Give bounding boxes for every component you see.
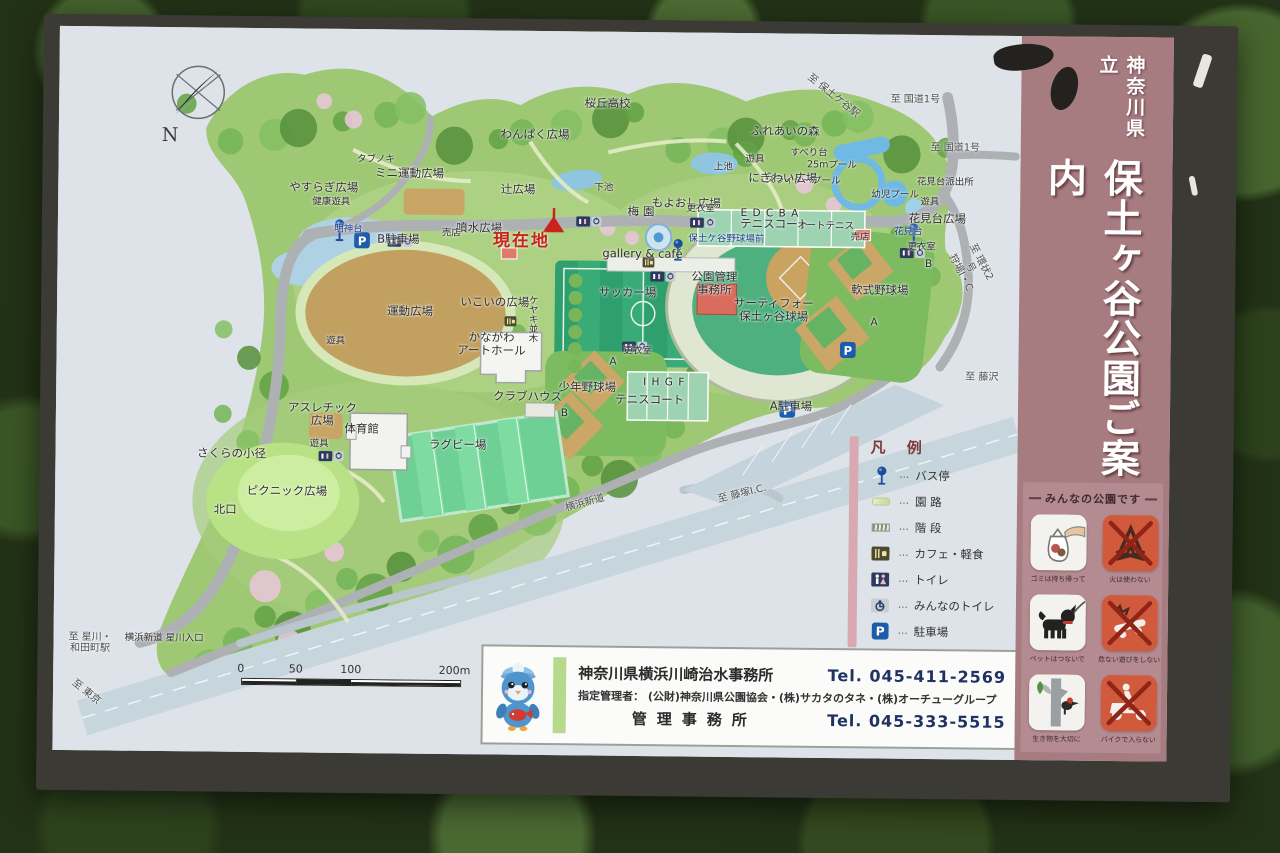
map-label: 至 国道1号	[891, 94, 941, 106]
map-label: 至 保土ケ谷駅	[805, 72, 862, 120]
map-label: 遊具	[920, 197, 939, 208]
map-label: 花見台	[894, 228, 923, 239]
map-label: ラグビー場	[429, 438, 487, 452]
map-label: 遊具	[746, 155, 765, 166]
rules-grid: ゴミは持ち帰って火は使わないペットはつないで危ない遊びをしない生き物を大切にバイ…	[1027, 514, 1157, 745]
map-label: わんぱく広場	[500, 127, 569, 141]
title-strip: 神奈川県立 保土ヶ谷公園ご案内 みんなの公園です ゴミは持ち帰って火は使わないペ…	[1014, 36, 1174, 762]
cafe-icon	[869, 543, 891, 563]
dog-leash-icon	[1029, 594, 1086, 651]
map-label: サッカー場	[599, 286, 657, 300]
map-label: すべり台	[790, 148, 827, 159]
frame-scratch	[1188, 175, 1198, 196]
frame-scratch	[1192, 53, 1212, 88]
map-label: 至 国道1号	[930, 142, 980, 154]
map-label: サーティフォー 保土ヶ谷球場	[734, 296, 814, 323]
no-motorbike-icon	[1100, 675, 1157, 732]
map-label: 遊具	[326, 336, 345, 347]
map-label: 幼児プール	[871, 190, 919, 201]
map-label: 更衣室	[907, 242, 936, 253]
map-label: かながわ アートホール	[457, 331, 526, 358]
admin-office-tel: Tel. 045-333-5515	[827, 711, 1006, 732]
no-skateboard-icon	[1101, 595, 1158, 652]
map-label: タブノキ	[357, 155, 395, 166]
designated-manager: 指定管理者： (公財)神奈川県公園協会・(株)サカタのタネ・(株)オーチューグル…	[578, 687, 1006, 707]
legend-item: …トイレ	[869, 569, 995, 590]
map-label: クラブハウス	[493, 389, 562, 403]
park-map: P	[52, 26, 1022, 760]
admin-office-name: 管理事務所	[632, 708, 757, 730]
rule-item: 火は使わない	[1096, 515, 1164, 586]
map-label: さくらの小径	[197, 446, 266, 460]
toilet-icon	[869, 569, 891, 589]
map-label: 売店	[442, 229, 461, 240]
legend-item: …カフェ・軽食	[869, 543, 995, 564]
sign-board: P	[36, 14, 1238, 802]
legend-item: …階 段	[870, 517, 996, 538]
map-label: ふれあいの森	[751, 125, 820, 139]
contact-box: 神奈川県横浜川崎治水事務所 Tel. 045-411-2569 指定管理者： (…	[481, 644, 1019, 750]
map-label: 至 藤沢	[965, 372, 998, 384]
park-mascot	[489, 654, 548, 735]
map-label: 更衣室	[686, 204, 715, 215]
legend-accent-bar	[848, 436, 859, 647]
map-label: A駐車場	[770, 400, 813, 414]
map-label: 健康遊具	[312, 197, 350, 208]
rules-title: みんなの公園です	[1029, 490, 1157, 507]
map-label: テニスコート	[615, 393, 684, 407]
rule-item: ゴミは持ち帰って	[1028, 514, 1089, 585]
map-label: 横浜新道 星川入口	[125, 633, 204, 645]
map-label: 至 星川・ 和田町駅	[68, 631, 111, 654]
map-label: 至 藤塚I.C.	[717, 483, 768, 506]
map-label: 下池	[594, 183, 613, 194]
map-label: 公園管理 事務所	[691, 270, 737, 297]
legend-items: …バス停…園 路…階 段…カフェ・軽食…トイレ…みんなのトイレP…駐車場	[869, 465, 996, 642]
scale-bar: 050100200m	[241, 661, 461, 686]
map-label: 花見台広場	[908, 212, 966, 226]
map-label: A	[870, 317, 878, 329]
map-label: にぎわい広場	[748, 171, 817, 185]
office-name: 神奈川県横浜川崎治水事務所	[578, 662, 773, 685]
map-label: A	[609, 356, 617, 368]
path-icon	[870, 491, 892, 511]
map-label: やすらぎ広場	[289, 180, 358, 194]
map-label: 軟式野球場	[851, 284, 909, 298]
map-label: 至 東京	[69, 677, 102, 707]
stairs-icon	[870, 517, 892, 537]
legend-item: …みんなのトイレ	[869, 595, 995, 616]
map-label: 保土ケ谷野球場前	[688, 234, 764, 246]
map-label: いこいの広場	[460, 295, 529, 309]
map-label: I H G F	[643, 376, 685, 389]
map-label: 明神台	[334, 224, 363, 235]
rule-item: ペットはつないで	[1027, 594, 1088, 665]
legend-item: …バス停	[870, 465, 996, 486]
map-label: 少年野球場	[558, 381, 616, 395]
map-label: B駐車場	[377, 233, 420, 247]
map-label: 売店	[851, 233, 870, 244]
no-fire-icon	[1102, 515, 1159, 572]
woodpecker-icon	[1029, 674, 1086, 731]
scale-ticks: 050100200m	[241, 661, 461, 677]
map-label: ケヤキ並木	[525, 295, 536, 343]
park-rules-panel: みんなの公園です ゴミは持ち帰って火は使わないペットはつないで危ない遊びをしない…	[1020, 482, 1163, 753]
accessible-toilet-icon	[869, 595, 891, 615]
scale-tick: 0	[237, 661, 244, 674]
map-label: 25mプール	[807, 160, 857, 171]
trash-bag-icon	[1030, 514, 1087, 571]
map-label: 運動広場	[387, 304, 433, 318]
rule-item: 危ない遊びをしない	[1095, 595, 1163, 666]
map-label: オートテニス	[797, 221, 854, 233]
rule-item: バイクで入らない	[1094, 675, 1162, 746]
svg-text:P: P	[875, 625, 884, 639]
map-label: 花見台派出所	[917, 178, 974, 190]
map-label: 体育館	[344, 423, 379, 437]
scale-tick: 100	[340, 662, 361, 675]
map-label: 遊具	[310, 439, 329, 450]
bus-stop-icon	[870, 465, 892, 485]
map-label: ミニ運動広場	[375, 167, 444, 181]
map-label: 現在地	[493, 232, 550, 252]
legend-item: …園 路	[870, 491, 996, 512]
park-title: 保土ヶ谷公園ご案内	[1032, 158, 1147, 480]
parking-icon: P	[869, 621, 891, 641]
rule-item: 生き物を大切に	[1027, 674, 1088, 745]
map-label: 上池	[714, 162, 733, 173]
office-tel: Tel. 045-411-2569	[828, 666, 1007, 687]
map-label: 横浜新道	[564, 493, 606, 515]
map-label: 辻広場	[501, 183, 536, 197]
legend-item: P…駐車場	[869, 621, 995, 642]
scale-tick: 200m	[439, 663, 471, 676]
map-label: ピクニック広場	[247, 485, 328, 499]
map-label: gallery & café	[602, 247, 682, 261]
map-label: 至 環状2号 狩場I・C	[944, 237, 997, 296]
map-label: B	[925, 258, 933, 270]
map-label: 桜丘高校	[584, 97, 630, 111]
legend-title: 凡 例	[870, 436, 996, 458]
contact-accent-bar	[553, 657, 567, 733]
map-label: B	[561, 407, 569, 419]
map-legend: 凡 例 …バス停…園 路…階 段…カフェ・軽食…トイレ…みんなのトイレP…駐車場	[848, 436, 1022, 649]
map-label: 梅 園	[628, 205, 655, 218]
map-label: 北口	[214, 503, 237, 516]
map-label: 更衣室	[623, 346, 652, 357]
scale-tick: 50	[289, 662, 303, 675]
